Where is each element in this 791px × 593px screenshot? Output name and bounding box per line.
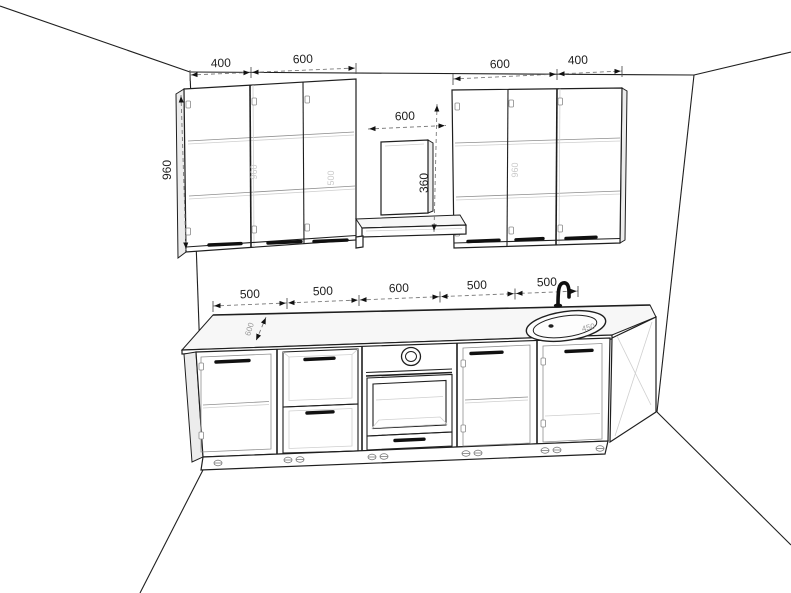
right-floor-line [657,412,791,545]
wall-door-handle [268,242,301,243]
wall-door-handle [314,240,347,241]
sink-drain [548,324,553,328]
interior-dim-label: 960 [249,164,259,179]
right-wall-corner [657,75,694,412]
dim-label-600: 600 [293,52,314,67]
oven-drawer-handle [395,439,424,440]
dim-label-600: 600 [389,281,410,296]
upper-cabinets-left: 960 500 [176,79,356,258]
room-walls [0,6,791,593]
dim-label-600: 600 [490,57,511,72]
wall-door-handle [516,239,543,240]
base-door-handle [471,352,502,353]
drawer-handle [307,412,333,413]
dim-label-400: 400 [211,56,232,71]
upper-cabinets-right: 960 [452,88,627,248]
cooker-hood [356,140,466,248]
wall-door-handle [468,240,499,241]
wall-door-handle [566,237,596,238]
dim-label-360: 360 [417,173,431,193]
left-floor-line [140,468,204,593]
dim-hood-width: 600 [368,109,446,129]
dims-upper-right: 600 400 [453,53,622,85]
kitchen-design-canvas: 960 500 960 [0,0,791,593]
dim-label-400: 400 [568,53,589,68]
kitchen-drawing: 960 500 960 [0,0,791,593]
dim-label-500: 500 [467,278,488,293]
dim-label-960: 960 [160,160,174,180]
dim-label-500: 500 [537,275,558,290]
interior-dim-label: 500 [326,170,336,185]
base-door-handle [566,350,592,351]
interior-dim-label: 960 [510,162,520,177]
wall-door-handle [209,244,241,245]
dim-label-600: 600 [395,109,416,124]
faucet [558,283,569,305]
dim-label-500: 500 [240,287,261,302]
base-door-handle [216,361,249,363]
faucet-base [554,304,562,308]
dims-base: 500 500 600 500 500 [213,275,578,312]
dims-upper-left: 400 600 [190,52,356,81]
drawer-handle [305,358,334,359]
dim-label-500: 500 [313,284,334,299]
